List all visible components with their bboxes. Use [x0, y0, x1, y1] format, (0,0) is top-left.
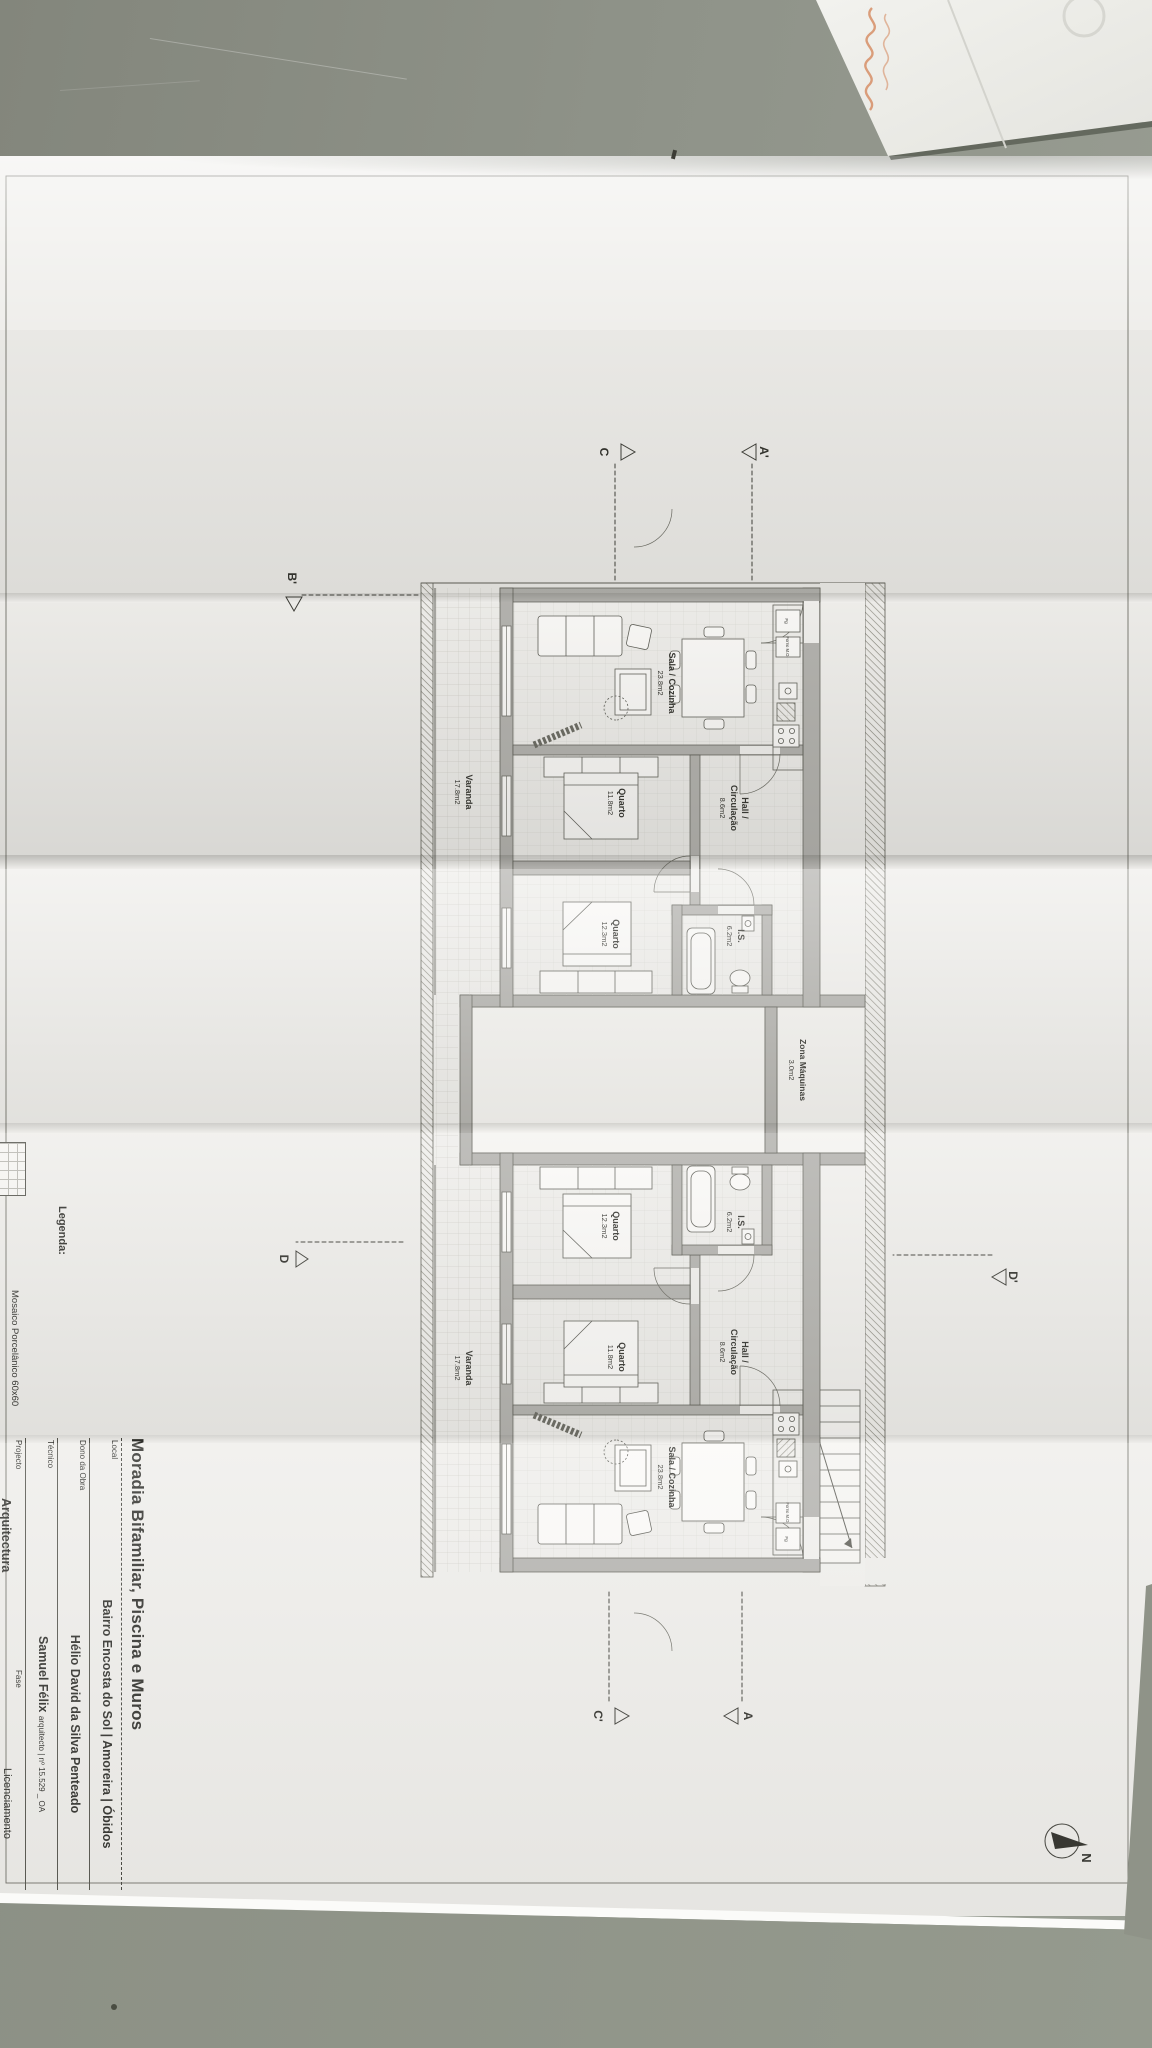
- section-triangle-c: [621, 444, 635, 460]
- title-block: Moradia Bifamiliar, Piscina e Muros Loca…: [0, 1438, 152, 1890]
- svg-text:8.6m2: 8.6m2: [718, 798, 727, 819]
- north-indicator: N: [1045, 1824, 1094, 1863]
- room-label-varanda-1: Varanda: [464, 774, 474, 810]
- envelope-embossing: [1064, 0, 1104, 36]
- section-triangle-b-prime: [286, 597, 302, 611]
- field-value: Samuel Félix arquitecto | nº 15.529 _ OA: [36, 1558, 50, 1890]
- title-block-row-projecto-fase: Projecto Arquitectura Fase Licenciamento: [0, 1438, 25, 1890]
- room-label-quarto1-1: Quarto: [617, 788, 627, 818]
- field-value: Licenciamento: [1, 1768, 13, 1839]
- section-triangle-d-prime: [992, 1269, 1006, 1285]
- field-label: Local: [110, 1440, 119, 1459]
- legend-heading: Legenda:: [56, 1206, 68, 1255]
- room-label-sala-1: Sala / Cozinha: [667, 652, 677, 714]
- field-label: Dono da Obra: [78, 1440, 87, 1490]
- room-label-sala-2: Sala / Cozinha: [667, 1446, 677, 1508]
- field-value: Arquitectura: [0, 1498, 13, 1572]
- field-label: Projecto: [14, 1440, 23, 1469]
- svg-text:3.0m2: 3.0m2: [787, 1060, 796, 1081]
- svg-text:Circulação: Circulação: [729, 1329, 739, 1376]
- legend-tile-swatch: [0, 1142, 26, 1196]
- section-marker-c-prime: C': [591, 1710, 605, 1722]
- svg-text:12.3m2: 12.3m2: [600, 921, 609, 946]
- room-label-quarto1-2: Quarto: [617, 1342, 627, 1372]
- envelope-handwriting: [865, 8, 875, 110]
- section-marker-b-prime: B': [285, 572, 299, 584]
- north-letter: N: [1079, 1853, 1094, 1862]
- section-triangle-a: [724, 1708, 738, 1724]
- desk-speck: [111, 2004, 117, 2010]
- field-value: Hélio David da Silva Penteado: [68, 1558, 82, 1890]
- photo-of-floor-plan: Sala / Cozinha 23.8m2 Hall / Circulação …: [0, 0, 1152, 2048]
- north-arrow-needle: [1051, 1832, 1088, 1849]
- section-marker-c: C: [597, 448, 611, 457]
- svg-text:6.2m2: 6.2m2: [725, 1212, 734, 1233]
- legend-item-label: Mosaico Porcelânico 60x60: [9, 1290, 20, 1406]
- room-label-is-1: I.S.: [736, 929, 746, 943]
- kitchen-label-oven-1: Forno M.O.: [785, 636, 790, 657]
- svg-text:12.3m2: 12.3m2: [600, 1213, 609, 1238]
- room-label-quarto2-1: Quarto: [611, 919, 621, 949]
- project-title: Moradia Bifamiliar, Piscina e Muros: [121, 1438, 152, 1890]
- envelope-crease: [948, 0, 1006, 148]
- section-marker-a: A: [741, 1712, 755, 1721]
- section-marker-a-prime: A': [757, 446, 771, 458]
- title-block-row-dono: Dono da Obra Hélio David da Silva Pentea…: [57, 1438, 89, 1890]
- desk-scratch: [60, 80, 200, 91]
- room-label-zona-maquinas: Zona Máquinas: [798, 1039, 808, 1101]
- section-marker-d-prime: D': [1006, 1271, 1020, 1283]
- svg-text:11.8m2: 11.8m2: [606, 1345, 615, 1369]
- room-label-is-2: I.S.: [736, 1215, 746, 1229]
- kitchen-label-oven-2: Forno M.O.: [785, 1502, 790, 1523]
- desk-scratch: [150, 38, 407, 80]
- title-block-row-local: Local Bairro Encosta do Sol | Amoreira |…: [89, 1438, 121, 1890]
- section-triangle-d: [296, 1251, 308, 1267]
- svg-text:17.8m2: 17.8m2: [453, 779, 462, 804]
- section-triangle-c-prime: [615, 1708, 629, 1724]
- svg-text:6.2m2: 6.2m2: [725, 926, 734, 947]
- svg-text:23.8m2: 23.8m2: [656, 670, 665, 695]
- section-marker-d: D: [277, 1255, 291, 1264]
- kitchen-label-fridge-2: Fg: [784, 1536, 789, 1542]
- drawing-sheet: Sala / Cozinha 23.8m2 Hall / Circulação …: [0, 156, 1152, 1916]
- floor-plan-drawing: Sala / Cozinha 23.8m2 Hall / Circulação …: [0, 156, 1152, 1916]
- kitchen-label-fridge-1: Fg: [784, 618, 789, 624]
- field-value: Bairro Encosta do Sol | Amoreira | Óbido…: [100, 1558, 114, 1890]
- room-label-varanda-2: Varanda: [464, 1350, 474, 1386]
- title-block-row-tecnico: Técnico Samuel Félix arquitecto | nº 15.…: [25, 1438, 57, 1890]
- svg-text:23.8m2: 23.8m2: [656, 1464, 665, 1489]
- svg-text:Circulação: Circulação: [729, 785, 739, 832]
- architect-registration: arquitecto | nº 15.529 _ OA: [37, 1716, 46, 1812]
- field-label: Fase: [14, 1670, 23, 1688]
- envelope-handwriting: [883, 14, 889, 90]
- field-label: Técnico: [46, 1440, 55, 1468]
- section-triangle-a-prime: [742, 444, 756, 460]
- svg-text:8.6m2: 8.6m2: [718, 1342, 727, 1363]
- room-label-hall-1: Hall /: [740, 797, 750, 819]
- svg-text:17.8m2: 17.8m2: [453, 1355, 462, 1380]
- room-label-quarto2-2: Quarto: [611, 1211, 621, 1241]
- room-label-hall-2: Hall /: [740, 1341, 750, 1363]
- svg-text:11.8m2: 11.8m2: [606, 791, 615, 815]
